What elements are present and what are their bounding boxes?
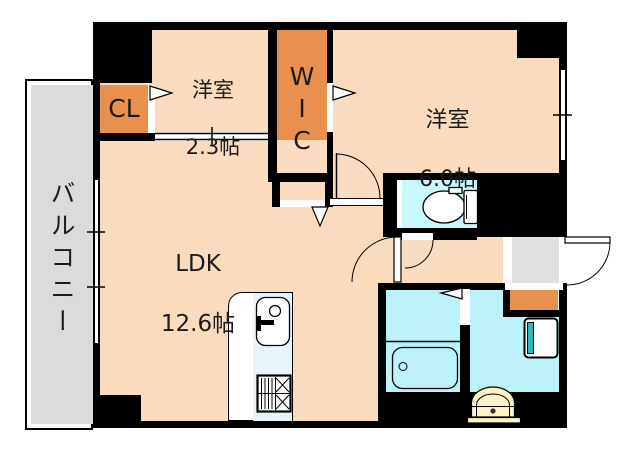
washroom-floor: [470, 317, 559, 392]
washroom-floor-upper: [470, 289, 503, 317]
ldk-name: LDK: [175, 251, 221, 277]
wall-segment: [517, 30, 560, 58]
wic-label: WIC: [283, 45, 321, 175]
kitchen-counter-top: [253, 293, 292, 421]
genkan-step-line: [505, 283, 563, 290]
bedroom-small-size: 2.3帖: [186, 135, 240, 159]
wall-segment: [93, 22, 152, 83]
balcony-label: バルコニー: [42, 130, 80, 390]
bedroom-main-name: 洋室: [425, 108, 469, 133]
wall-segment: [386, 392, 567, 428]
wall-segment: [272, 182, 280, 207]
wall-segment: [325, 182, 333, 207]
bedroom-small-name: 洋室: [192, 78, 234, 102]
wall-segment: [93, 343, 100, 428]
wall-segment: [503, 310, 563, 317]
wall-segment: [327, 22, 333, 83]
bedroom-main-label: 洋室 6.0帖: [385, 76, 510, 138]
wall-segment: [460, 325, 470, 392]
bedroom-main-size: 6.0帖: [419, 167, 476, 192]
wic-door-opening: [327, 83, 333, 132]
wall-segment: [378, 283, 386, 421]
wall-segment: [93, 30, 100, 180]
entry-genkan-floor: [512, 237, 559, 283]
shoe-cabinet: [510, 290, 558, 310]
corridor-floor: [383, 237, 503, 283]
floor-plan: バルコニー CL WIC 洋室 2.3帖 洋室 6.0帖 LDK 12.6帖: [0, 0, 631, 451]
closet-cl-label: CL: [100, 85, 148, 133]
balcony-window: [93, 180, 100, 343]
ldk-size: 12.6帖: [161, 311, 235, 337]
bathroom-floor: [386, 289, 460, 392]
toilet-wall-gap: [397, 180, 402, 228]
bathroom-door-opening: [460, 289, 470, 325]
wall-segment: [383, 283, 505, 290]
entrance-door-icon: [565, 237, 610, 285]
wall-segment: [477, 173, 567, 237]
corridor-entry-step: [503, 237, 512, 283]
toilet-door-opening: [402, 233, 433, 240]
wall-segment: [559, 30, 567, 70]
wall-segment: [100, 395, 141, 421]
lower-closet-door-opening: [280, 200, 325, 207]
bedroom-main-window: [559, 70, 567, 160]
wall-segment: [93, 133, 155, 141]
ldk-label: LDK 12.6帖: [128, 220, 268, 280]
bedroom-small-label: 洋室 2.3帖: [152, 48, 274, 106]
